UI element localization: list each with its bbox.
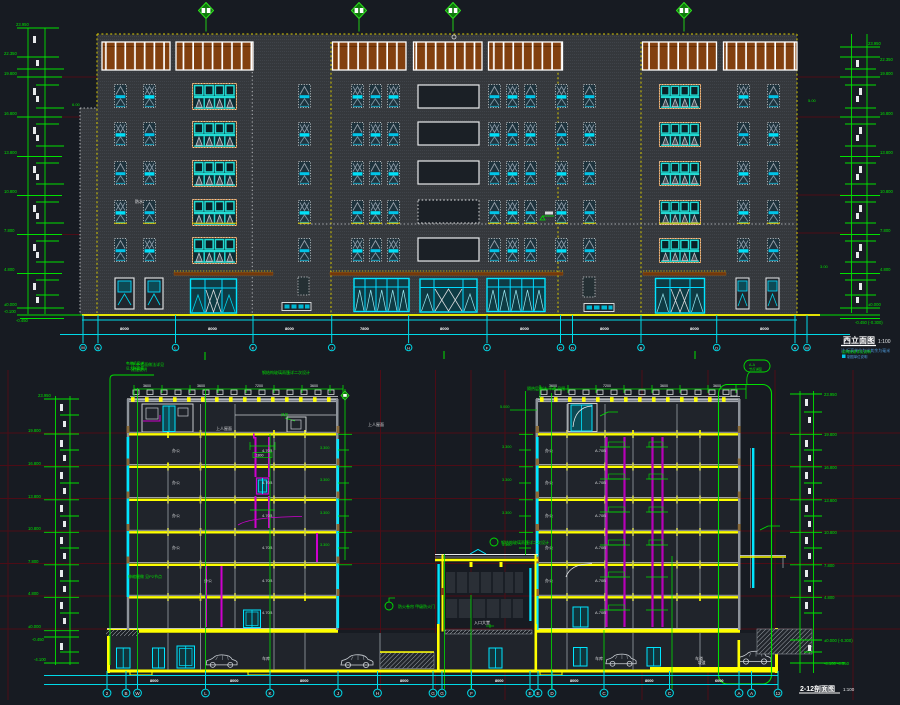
svg-text:F: F <box>470 691 473 696</box>
svg-text:22.350: 22.350 <box>880 57 893 62</box>
svg-text:4.70B: 4.70B <box>262 513 273 518</box>
svg-text:7.800: 7.800 <box>4 228 15 233</box>
svg-text:3600: 3600 <box>143 384 151 388</box>
svg-text:10.800: 10.800 <box>28 526 41 531</box>
svg-text:16.800: 16.800 <box>824 465 837 470</box>
svg-text:±0.000: ±0.000 <box>868 302 881 307</box>
svg-text:3.300: 3.300 <box>502 445 512 449</box>
svg-text:A.70B: A.70B <box>595 480 606 485</box>
svg-text:8000: 8000 <box>495 679 503 683</box>
svg-text:-0.450: -0.450 <box>32 637 45 642</box>
svg-text:16.800: 16.800 <box>880 111 893 116</box>
svg-text:车库: 车库 <box>262 655 270 661</box>
svg-text:7.800: 7.800 <box>28 559 39 564</box>
svg-text:19.800: 19.800 <box>4 71 17 76</box>
svg-text:上人屋面: 上人屋面 <box>368 421 384 427</box>
svg-text:4.70B: 4.70B <box>262 578 273 583</box>
svg-text:-4.100: -4.100 <box>34 657 47 662</box>
svg-text:N: N <box>97 346 100 351</box>
svg-text:3.300: 3.300 <box>502 511 512 515</box>
svg-text:D: D <box>715 346 718 351</box>
svg-text:23.950: 23.950 <box>824 392 837 397</box>
svg-text:3.300: 3.300 <box>320 478 330 482</box>
svg-text:6.00: 6.00 <box>72 102 81 107</box>
svg-text:8000: 8000 <box>760 326 770 331</box>
svg-text:A-A: A-A <box>749 363 756 367</box>
svg-text:3600: 3600 <box>713 384 721 388</box>
svg-text:3.300: 3.300 <box>320 511 330 515</box>
svg-text:M: M <box>805 346 808 351</box>
svg-text:A.70B: A.70B <box>595 513 606 518</box>
svg-text:23.950: 23.950 <box>38 393 51 398</box>
svg-text:A.70B: A.70B <box>595 448 606 453</box>
svg-text:节点详图: 节点详图 <box>749 367 762 372</box>
svg-text:防水: 防水 <box>135 198 143 204</box>
svg-text:10.800: 10.800 <box>880 189 893 194</box>
svg-text:8000: 8000 <box>600 326 610 331</box>
svg-text:4.70B: 4.70B <box>262 448 273 453</box>
svg-text:B: B <box>124 691 127 696</box>
svg-text:4.800: 4.800 <box>4 267 15 272</box>
svg-text:1:100: 1:100 <box>843 687 855 692</box>
svg-text:钢结构玻璃雨篷详二次设计: 钢结构玻璃雨篷详二次设计 <box>262 369 310 375</box>
svg-text:结构找坡详见说明: 结构找坡详见说明 <box>842 349 871 354</box>
svg-text:办公: 办公 <box>172 512 180 518</box>
svg-text:H: H <box>376 691 379 696</box>
svg-text:19.800: 19.800 <box>28 428 41 433</box>
svg-text:8000: 8000 <box>645 679 653 683</box>
svg-text:上人屋面: 上人屋面 <box>216 425 232 431</box>
svg-text:8000: 8000 <box>300 679 308 683</box>
svg-text:钢结构玻璃雨篷详二次设计: 钢结构玻璃雨篷详二次设计 <box>501 539 549 545</box>
svg-text:7800: 7800 <box>360 326 370 331</box>
svg-text:A.70B: A.70B <box>595 578 606 583</box>
svg-text:3.300: 3.300 <box>320 446 330 450</box>
svg-text:A.70B: A.70B <box>595 610 606 615</box>
svg-text:16.800: 16.800 <box>28 461 41 466</box>
svg-text:13.800: 13.800 <box>824 498 837 503</box>
svg-text:±0.000 (-0.300): ±0.000 (-0.300) <box>824 638 853 643</box>
svg-text:19.800: 19.800 <box>880 71 893 76</box>
svg-text:B: B <box>640 346 643 351</box>
svg-text:13.800: 13.800 <box>880 150 893 155</box>
svg-text:16.800: 16.800 <box>4 111 17 116</box>
svg-text:伸缩缝做 见P2节点: 伸缩缝做 见P2节点 <box>128 573 162 579</box>
svg-text:防火卷帘 甲级防火门: 防火卷帘 甲级防火门 <box>398 603 435 609</box>
svg-text:G: G <box>440 691 444 696</box>
svg-text:7.800: 7.800 <box>824 563 835 568</box>
svg-text:3600: 3600 <box>197 384 205 388</box>
svg-text:制图单位说明: 制图单位说明 <box>847 354 868 359</box>
svg-text:3.300: 3.300 <box>320 543 330 547</box>
svg-text:5.00: 5.00 <box>808 98 817 103</box>
svg-text:1800: 1800 <box>256 454 264 458</box>
svg-text:2: 2 <box>106 691 109 696</box>
svg-text:8000: 8000 <box>570 679 578 683</box>
svg-text:7.800: 7.800 <box>880 228 891 233</box>
svg-text:E: E <box>536 691 539 696</box>
svg-text:12: 12 <box>775 691 781 696</box>
svg-text:E: E <box>528 691 531 696</box>
svg-text:8000: 8000 <box>120 326 130 331</box>
svg-text:22.350: 22.350 <box>4 51 17 56</box>
svg-text:隔热层做法,平改 见图: 隔热层做法,平改 见图 <box>527 385 565 391</box>
svg-text:4.70B: 4.70B <box>262 480 273 485</box>
svg-text:L: L <box>204 691 207 696</box>
svg-text:4.800: 4.800 <box>880 267 891 272</box>
svg-text:±0.000: ±0.000 <box>28 624 41 629</box>
svg-text:3600: 3600 <box>660 384 668 388</box>
svg-text:M: M <box>81 345 84 350</box>
svg-text:8000: 8000 <box>285 326 295 331</box>
svg-text:风机: 风机 <box>281 412 289 417</box>
svg-text:J: J <box>337 691 339 696</box>
svg-text:23.950: 23.950 <box>868 41 881 46</box>
svg-text:坡道: 坡道 <box>698 660 706 665</box>
svg-text:23.950: 23.950 <box>16 22 29 27</box>
svg-text:3.300: 3.300 <box>502 478 512 482</box>
svg-text:D: D <box>571 346 574 351</box>
svg-text:A.70B: A.70B <box>595 545 606 550</box>
svg-text:6000: 6000 <box>715 679 723 683</box>
svg-text:G: G <box>431 691 435 696</box>
svg-text:-4.100 -4.550: -4.100 -4.550 <box>824 661 850 666</box>
svg-text:4.70B: 4.70B <box>262 610 273 615</box>
svg-text:4.70B: 4.70B <box>262 545 273 550</box>
svg-text:西立面图: 西立面图 <box>843 335 875 345</box>
svg-text:J: J <box>331 346 333 351</box>
svg-text:W: W <box>135 691 140 696</box>
svg-text:-0.100: -0.100 <box>4 309 17 314</box>
svg-text:8000: 8000 <box>230 679 238 683</box>
svg-text:5.000: 5.000 <box>500 405 510 409</box>
svg-text:H: H <box>407 346 410 351</box>
svg-text:K: K <box>252 346 255 351</box>
svg-text:-0.450 (-0.300): -0.450 (-0.300) <box>855 320 883 325</box>
svg-text:8000: 8000 <box>520 326 530 331</box>
svg-text:见大样图集: 见大样图集 <box>126 366 144 371</box>
svg-text:电梯机房详: 电梯机房详 <box>126 361 144 366</box>
svg-text:10.800: 10.800 <box>824 530 837 535</box>
svg-text:办公: 办公 <box>172 479 180 485</box>
svg-text:4.800: 4.800 <box>28 591 39 596</box>
svg-text:办公: 办公 <box>172 544 180 550</box>
svg-text:±0.000: ±0.000 <box>4 302 17 307</box>
svg-text:8000: 8000 <box>440 326 450 331</box>
svg-text:3600: 3600 <box>310 384 318 388</box>
svg-text:19.800: 19.800 <box>824 432 837 437</box>
svg-text:8000: 8000 <box>208 326 218 331</box>
svg-text:10.800: 10.800 <box>4 189 17 194</box>
svg-text:办公: 办公 <box>172 447 180 453</box>
svg-text:1:100: 1:100 <box>878 339 891 345</box>
svg-text:入口大堂: 入口大堂 <box>474 619 490 625</box>
svg-text:8000: 8000 <box>400 679 408 683</box>
svg-text:3.00: 3.00 <box>820 264 829 269</box>
svg-text:2-12剖面图: 2-12剖面图 <box>800 684 835 693</box>
svg-text:7200: 7200 <box>603 384 611 388</box>
svg-text:A: A <box>794 346 797 351</box>
svg-text:8000: 8000 <box>150 679 158 683</box>
svg-text:13.800: 13.800 <box>28 494 41 499</box>
svg-text:C: C <box>559 346 562 351</box>
svg-text:8000: 8000 <box>690 326 700 331</box>
svg-text:13.800: 13.800 <box>4 150 17 155</box>
svg-text:7200: 7200 <box>255 384 263 388</box>
svg-text:-0.450: -0.450 <box>16 318 29 323</box>
svg-text:4.800: 4.800 <box>824 595 835 600</box>
svg-text:车库: 车库 <box>595 655 603 661</box>
